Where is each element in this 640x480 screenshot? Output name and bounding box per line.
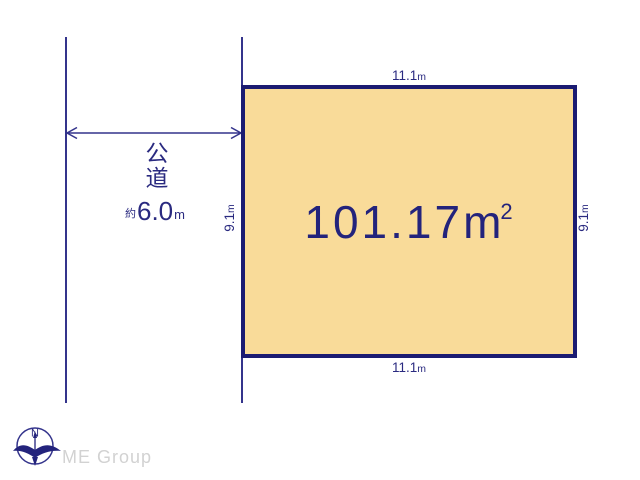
- dimension-bottom-unit: m: [417, 363, 426, 375]
- parcel-area-unit: m: [463, 196, 501, 248]
- dimension-right-value: 9.1: [576, 213, 591, 232]
- dimension-label-bottom: 11.1m: [241, 360, 577, 377]
- road-label-block: 公道 約6.0m: [115, 141, 195, 228]
- land-parcel: 101.17m2: [241, 85, 577, 358]
- dimension-left-value: 9.1: [222, 213, 237, 232]
- dimension-label-left: 9.1m: [222, 194, 238, 242]
- road-width-label: 約6.0m: [115, 198, 195, 228]
- brand-label: ME Group: [62, 447, 152, 468]
- dimension-bottom-value: 11.1: [392, 360, 417, 375]
- dimension-top-unit: m: [417, 71, 426, 83]
- road-width-arrow-icon: [64, 126, 244, 140]
- compass-north-icon: N: [11, 423, 63, 471]
- dimension-top-value: 11.1: [392, 68, 417, 83]
- road-boundary-line-left: [65, 37, 67, 403]
- parcel-area-value: 101.17: [304, 196, 463, 248]
- parcel-area-exponent: 2: [500, 199, 512, 224]
- parcel-area-label: 101.17m2: [304, 195, 513, 249]
- road-width-unit: m: [174, 207, 185, 222]
- dimension-left-unit: m: [225, 204, 237, 213]
- road-width-value: 6.0: [137, 196, 173, 226]
- site-plan-diagram: 公道 約6.0m 101.17m2 11.1m 11.1m 9.1m 9.1m …: [0, 0, 640, 480]
- dimension-right-unit: m: [579, 204, 591, 213]
- dimension-label-top: 11.1m: [241, 68, 577, 85]
- dimension-label-right: 9.1m: [576, 194, 592, 242]
- road-width-prefix: 約: [125, 208, 136, 220]
- road-name-label: 公道: [142, 141, 168, 191]
